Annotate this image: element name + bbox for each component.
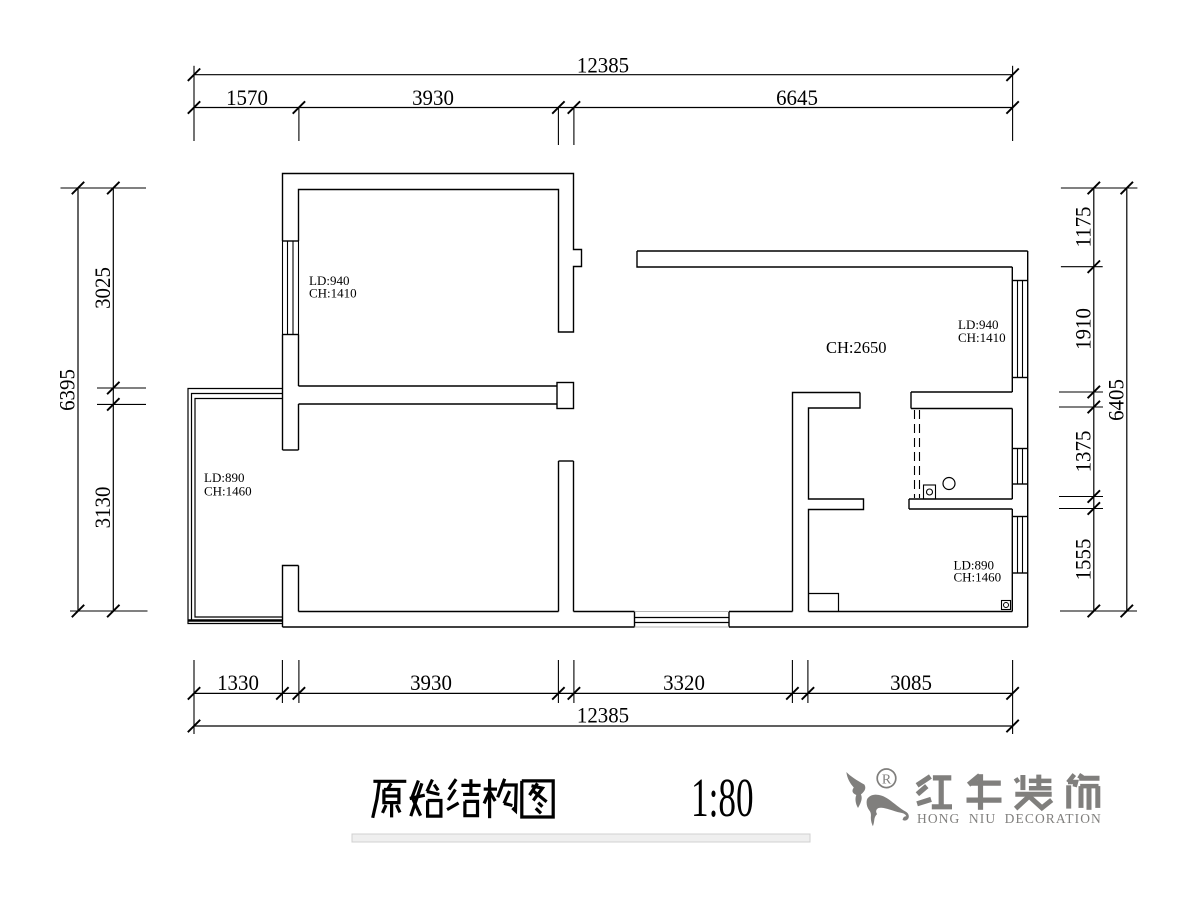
svg-text:6645: 6645 — [776, 86, 818, 111]
svg-text:3085: 3085 — [890, 671, 932, 696]
svg-text:3025: 3025 — [91, 267, 116, 309]
svg-text:3930: 3930 — [410, 671, 452, 696]
svg-text:CH:2650: CH:2650 — [826, 338, 887, 357]
svg-text:1910: 1910 — [1071, 308, 1096, 350]
svg-text:6395: 6395 — [55, 369, 80, 411]
svg-text:1555: 1555 — [1071, 539, 1096, 581]
svg-text:R: R — [882, 773, 892, 788]
svg-text:1175: 1175 — [1071, 206, 1096, 247]
svg-text:1330: 1330 — [217, 671, 259, 696]
svg-text:6405: 6405 — [1104, 379, 1129, 421]
svg-text:CH:1410: CH:1410 — [958, 330, 1006, 345]
svg-text:CH:1410: CH:1410 — [309, 286, 357, 301]
svg-text:HONG NIU DECORATION: HONG NIU DECORATION — [917, 811, 1102, 826]
svg-text:3930: 3930 — [412, 86, 454, 111]
svg-text:1570: 1570 — [226, 86, 268, 111]
svg-text:CH:1460: CH:1460 — [954, 570, 1002, 585]
svg-text:12385: 12385 — [577, 53, 629, 78]
svg-text:3130: 3130 — [91, 487, 116, 529]
svg-text:CH:1460: CH:1460 — [204, 484, 252, 499]
svg-text:3320: 3320 — [663, 671, 705, 696]
svg-text:12385: 12385 — [577, 703, 629, 728]
svg-text:1375: 1375 — [1071, 431, 1096, 473]
svg-text:1:80: 1:80 — [691, 767, 754, 828]
